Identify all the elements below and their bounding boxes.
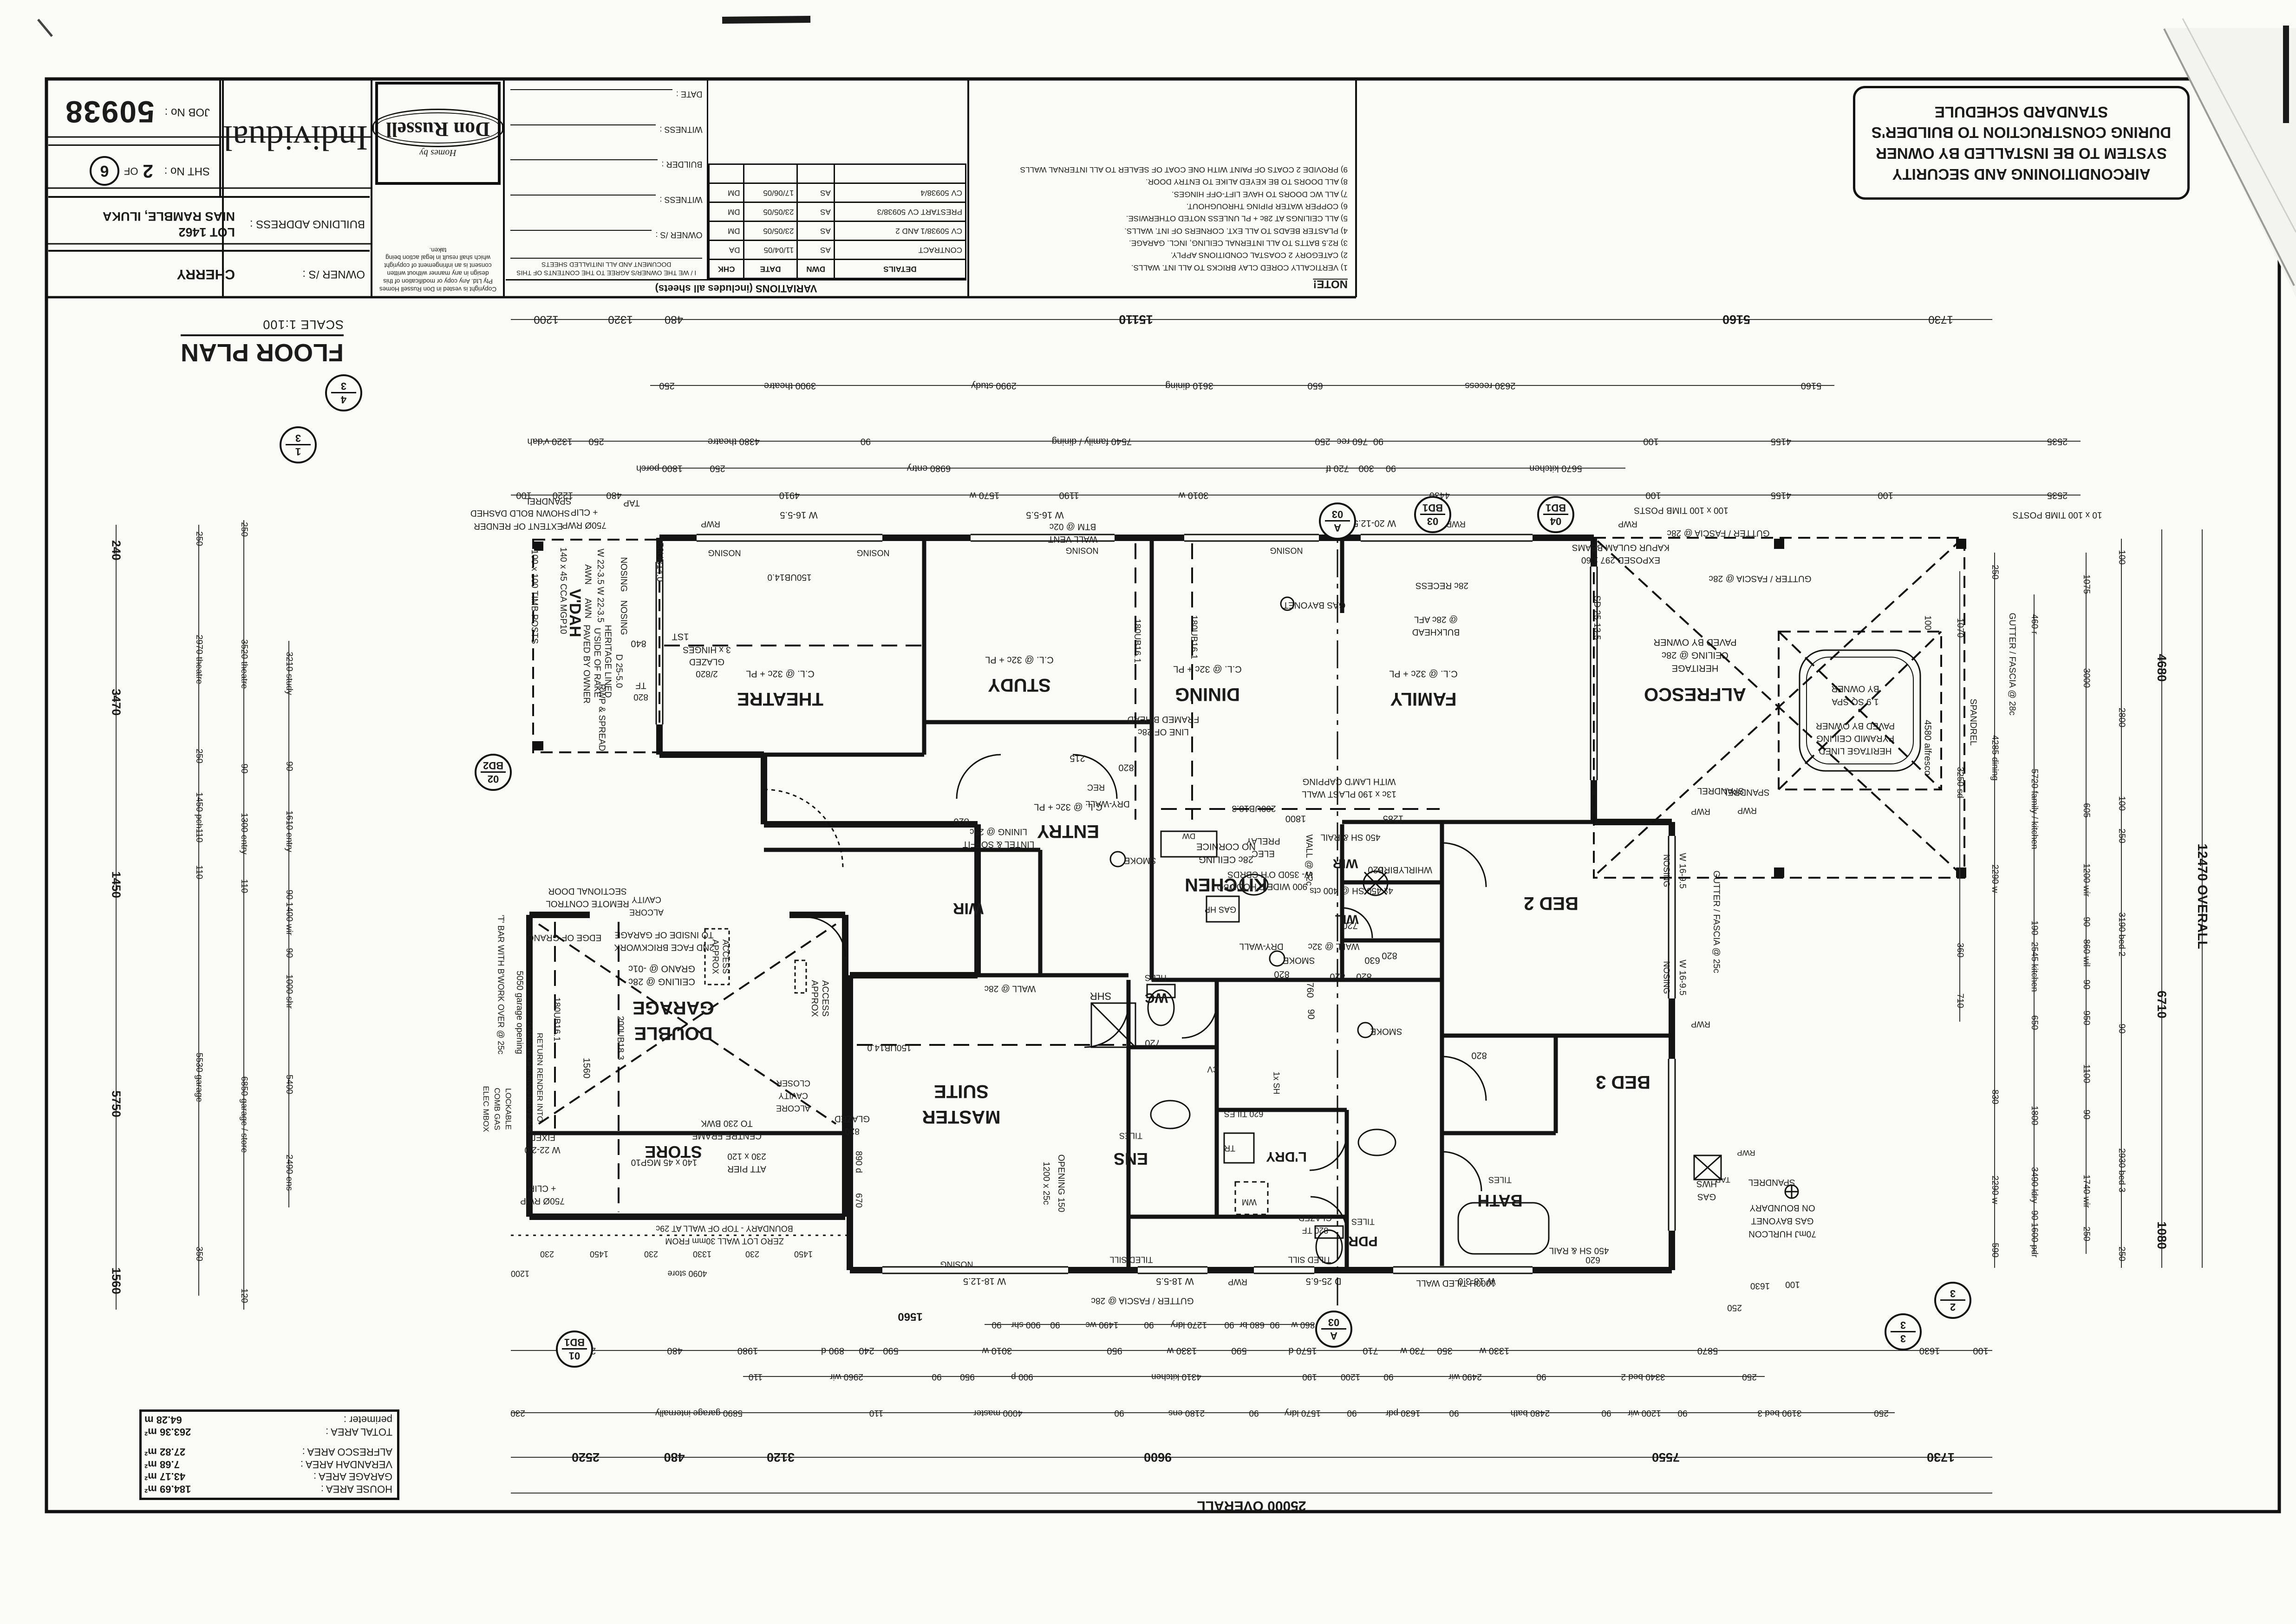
plan-label: 450 SH & RAIL [1549,1246,1609,1255]
area-row: GARAGE AREA :43.17 m² [141,1470,396,1483]
plan-label: NOSING [856,548,889,557]
drawing-title-block: FLOOR PLAN SCALE 1:100 [125,307,344,367]
plan-label: 1490 wc [1086,1320,1119,1329]
plan-label: 1220 [553,490,574,500]
copyright-text: Copyright is vested in Don Russell Homes… [373,187,502,296]
plan-label: 710 [1363,1346,1378,1356]
reference-marker: 23 [1934,1282,1971,1319]
aircon-note-box: AIRCONDITIONING AND SECURITY SYSTEM TO B… [1853,86,2190,200]
builder-logo-block: Copyright is vested in Don Russell Homes… [373,80,502,296]
note-item: 2) CATEGORY 2 COASTAL CONDITIONS APPLY. [977,249,1348,261]
plan-label: LOCKABLE [504,1088,512,1130]
plan-label: 1330 w [1480,1346,1510,1356]
plan-label: @ 28c AFL [1414,614,1458,624]
plan-label: 'T' BAR WITH B'WORK OVER @ 25c [496,915,505,1055]
plan-label: 90 [1536,1372,1546,1381]
plan-label: 90 [2081,1109,2091,1119]
plan-label: 1ST [672,632,689,641]
plan-label: 90 [1306,1009,1316,1019]
room-label: MASTER [922,1107,1001,1127]
plan-label: 890 d [821,1346,844,1356]
plan-label: CEILING @ 28c [1662,650,1729,660]
plan-label: 6980 entry [907,463,951,473]
plan-label: GUTTER / FASCIA @ 28c [1709,574,1812,583]
plan-label: RWP [1618,520,1637,528]
plan-label: 620 [1585,1255,1600,1264]
room-label: 1450 [110,871,122,898]
plan-label: 150UB14.0 [655,537,664,581]
room-label: 4680 [2155,654,2168,682]
plan-label: 90 1600 pdr [2029,1210,2039,1257]
variations-table: DETAILSDWNDATECHK CONTRACTAS11/04/05DACV… [708,163,966,279]
plan-label: 10 x 100 TIMB POSTS [2013,510,2102,519]
plan-label: 110 [239,879,248,893]
room-label: 1560 [898,1311,922,1322]
room-label: ENTRY [1037,822,1099,841]
plan-label: HERITAGE [1672,663,1719,673]
plan-label: GRANO @ -01c [628,964,695,973]
room-label: 12470 OVERALL [2195,843,2209,949]
plan-label: 250 [2117,828,2126,843]
plan-label: 820 [633,692,648,701]
plan-label: 820 [953,816,969,826]
plan-label: 860 w [1291,1320,1315,1329]
room-label: 5160 [1722,313,1750,326]
plan-label: TILED SILL [1109,1255,1153,1264]
plan-label: 2630 recess [1465,381,1516,391]
plan-label: 110 [749,1372,763,1381]
plan-label: W 16-9.5 [1677,959,1687,995]
plan-label: 2545 kitchen [2029,942,2039,992]
total-sheets: 6 [90,156,119,186]
plan-label: 1450 [590,1250,608,1259]
plan-label: 215 [1070,753,1085,763]
variation-row [709,164,966,183]
scanned-floor-plan-sheet: OWNER /S : CHERRY BUILDING ADDRESS : LOT… [0,0,2296,1624]
plan-label: 3250 sd [1955,767,1964,798]
plan-label: 180UB16.1 [552,997,561,1041]
plan-label: GAS HP [1205,905,1236,914]
plan-label: 820 [1274,969,1289,979]
plan-label: CV [1207,1065,1219,1074]
room-label: 3470 [110,689,122,716]
plan-label: 2290 w [1990,1175,1999,1204]
plan-label: 950 [960,1372,975,1381]
plan-label: 250 [659,381,674,391]
plan-label: WALL VENT [1048,534,1097,543]
plan-label: KAPUR GULAM BEAMS [1572,542,1670,552]
plan-label: 5670 kitchen [1529,463,1582,473]
don-russell-logo: Homes by Don Russell [375,82,501,185]
plan-label: CAVITY [778,1091,808,1100]
plan-label: 90 [1270,1320,1279,1329]
room-label: 2520 [572,1451,600,1464]
plan-label: 90 [2081,979,2091,989]
note-item: 8) ALL DOORS TO BE KEYED ALIKE TO ENTRY … [977,176,1348,188]
plan-label: 200UB18.3 [615,1016,625,1060]
drawing-scale: SCALE 1:100 [125,317,344,332]
plan-label: 2/820 [696,669,718,678]
plan-label: 250 [1727,1303,1742,1312]
plan-label: C.L. @ 32c + PL [985,655,1054,665]
plan-label: ELEC [1252,848,1275,858]
plan-label: 4155 [1771,437,1792,446]
plan-label: RWP [701,520,720,528]
plan-label: 670 [854,1193,863,1208]
plan-label: 150UB14.0 [867,1043,911,1052]
reference-marker: 33 [1885,1313,1922,1350]
variations-title: VARIATIONS (includes all sheets) [506,279,966,296]
plan-label: 1630 pdr [1385,1408,1420,1417]
variations-header: DATE [744,260,797,279]
plan-label: 250 [710,463,725,473]
area-row: TOTAL AREA :263.36 m² [141,1426,396,1438]
plan-label: GLAZED [1298,1213,1332,1222]
variation-row: CONTRACTAS11/04/05DA [709,241,966,260]
room-label: BED 3 [1596,1072,1650,1092]
plan-label: 250 [1742,1372,1757,1381]
plan-label: TAP [1715,1175,1730,1184]
plan-label: 4000 master [973,1408,1023,1417]
plan-label: 1560 [581,1058,591,1079]
plan-label: DW [1182,832,1195,840]
plan-label: 1800 [2029,1106,2039,1125]
plan-label: C.L. @ 32c + PL [746,669,815,678]
room-label: 1080 [2155,1221,2168,1249]
plan-label: 3610 dining [1165,381,1213,391]
plan-label: 180UB16.1 [1189,615,1198,659]
plan-label: EDGE OF GRANO [527,933,601,942]
plan-label: LINING @ 25c [970,827,1027,836]
reference-marker: A03 [1319,502,1356,540]
plan-label: 90 [2117,1024,2126,1033]
plan-label: CENTRE FRAME [692,1131,762,1140]
plan-label: 1630 [1750,1281,1770,1290]
plan-label: 1200 wir [1628,1408,1661,1417]
plan-label: NOSING [1662,854,1671,887]
plan-label: 1450 [794,1250,813,1259]
plan-label: 750Ø RWP [520,1196,565,1205]
plan-label: 820 [1330,972,1345,981]
logo-name: Don Russell [386,118,490,141]
plan-label: 5720 family / kitchen [2029,769,2039,849]
plan-label: 250 [588,437,604,446]
plan-label: + CLIP [529,1183,556,1193]
plan-label: 90 [1386,463,1396,473]
plan-label: 150UB14.0 [767,572,811,581]
plan-label: 350 [1437,1346,1452,1356]
plan-label: 230 [540,1250,554,1259]
plan-label: 2490 ens [284,1154,294,1191]
plan-label: 230 x 120 [727,1151,766,1161]
plan-label: WM [1242,1198,1257,1207]
plan-label: 100 [1923,615,1932,630]
plan-label: 2180 ens [1168,1408,1205,1417]
note-item: 5) ALL CEILINGS AT 28c + PL UNLESS NOTED… [977,212,1348,224]
plan-label: 2490 wir [1448,1372,1482,1381]
plan-series-name: Individual [223,118,368,158]
area-row: HOUSE AREA :184.69 m² [141,1482,396,1495]
plan-label: 250 [2117,1246,2126,1261]
plan-label: 100 [1973,1346,1988,1356]
plan-label: FIXED [529,1132,555,1141]
plan-label: 590 [1231,1346,1246,1356]
plan-label: LINTEL & SOFFIT [963,839,1035,848]
plan-label: 140 x 45 MGP10 [631,1157,698,1167]
plan-label: BY OWNER [1831,684,1879,693]
plan-label: PYRAMID CEILING [1816,733,1894,743]
plan-label: 1570 d [1288,1346,1317,1356]
plan-label: 250 [194,531,203,546]
plan-label: NOSING [619,557,628,592]
plan-label: + CLIP [571,507,598,516]
note-item: 6) COPPER WATER PIPING THROUGHOUT. [977,200,1348,212]
plan-label: HWS [1696,1179,1717,1188]
plan-label: REC [1087,783,1105,792]
plan-label: GAS [1697,1192,1716,1201]
room-label: V'DAH [566,589,583,637]
room-label: 240 [110,540,122,560]
plan-label: 890 d [854,1151,863,1173]
plan-label: GAS BAYONET [1283,600,1346,609]
plan-label: 1200 wir [2081,863,2091,897]
plan-label: 2535 [2047,437,2068,446]
job-no-label: JOB No : [160,103,215,122]
plan-label: SMOKE [1124,855,1156,865]
address-street: NIAS RAMBLE, ILUKA [103,208,235,224]
plan-label: 1270 ldry [1171,1320,1207,1329]
plan-label: 3010 w [982,1346,1012,1356]
plan-label: 250 [1990,565,1999,580]
plan-label: 5400 [284,1075,294,1094]
plan-label: 820 [1471,1050,1487,1060]
plan-label: 1320 v'dah [527,437,572,446]
plan-label: 5530 garage [194,1053,203,1102]
plan-label: 90 [1249,1408,1259,1417]
plan-label: GARAGE OPENING REVEALS [525,1022,534,1133]
plan-label: 950 [1107,1346,1122,1356]
plan-label: WHIRLYBIRD [1377,865,1432,874]
plan-label: NOSING [1270,546,1303,555]
plan-label: 100 [1878,490,1893,500]
address-label: BUILDING ADDRESS : [235,215,370,233]
plan-label: 90 [861,437,871,446]
plan-label: 180UB16.1 [1132,619,1141,663]
area-schedule: HOUSE AREA :184.69 m²GARAGE AREA :43.17 … [139,1409,399,1500]
plan-label: 830 [1990,1089,1999,1104]
owner-name: CHERRY [176,266,235,282]
plan-label: 2960 wir [830,1372,863,1381]
signature-row: WITNESS : [510,124,702,145]
plan-label: ELEC MBOX [482,1086,490,1132]
plan-label: 820 [1356,972,1371,981]
room-label: THEATRE [737,689,823,709]
plan-label: OPENING 150 [1056,1154,1065,1213]
plan-label: ON BOUNDARY [1749,1203,1815,1212]
plan-label: 90 [932,1372,941,1381]
plan-label: 300 [1358,463,1374,473]
plan-label: 1630 [1919,1346,1940,1356]
plan-label: C.L. @ 32c + PL [1173,664,1242,674]
plan-label: 760 rec [1337,437,1368,446]
plan-label: 4x 450 SH @ 400 cts [1310,886,1393,895]
plan-label: 90 [1373,437,1383,446]
plan-label: GAS BAYONET [1751,1216,1814,1225]
plan-label: AWN [583,598,592,619]
room-label: 6710 [2155,991,2168,1018]
sheet-no-label: SHT No : [160,162,215,180]
plan-label: 70mJ HURLCON [1748,1229,1816,1238]
plan-label: 90 1400 wir [284,890,294,935]
plan-label: GUTTER / FASCIA @ 28c [1091,1296,1194,1305]
area-row: VERANDAH AREA :7.68 m² [141,1458,396,1470]
plan-label: 7540 family / dining [1052,437,1132,446]
plan-label: 3010 w [1179,490,1209,500]
plan-label: 90 [1050,1320,1060,1329]
plan-label: 1200 [511,1269,529,1278]
plan-label: 90 [1144,1320,1154,1329]
room-label: GARAGE [633,998,714,1017]
plan-label: TAP [623,498,640,507]
plan-label: SPANDREL [1697,786,1744,795]
plan-label: 250 [1315,437,1330,446]
plan-label: 1740 wir [2081,1174,2091,1208]
plan-label: 1450 pch110 [194,792,203,842]
plan-label: 1075 [2081,574,2091,594]
plan-label: TR [1224,1144,1235,1153]
plan-label: SPANDREL [1748,1177,1795,1187]
plan-label: 100 [516,490,531,500]
plan-label: BOUNDARY - TOP OF WALL AT 29c [656,1224,793,1233]
plan-label: 1190 [1059,490,1079,500]
plan-label: 590 [883,1346,898,1356]
plan-label: 230 [745,1250,759,1259]
plan-label: FRAMED B'HEAD [1128,714,1200,724]
plan-label: 3 x HINGES [683,645,731,654]
plan-label: TILES [1488,1175,1512,1184]
plan-label: 3900 theatre [764,381,816,391]
area-row [141,1438,396,1446]
plan-label: 120 [239,1288,248,1303]
plan-label: EXTENT OF RENDER [474,521,563,530]
plan-label: SPANDREL [1968,698,1977,745]
plan-label: HERITAGE LINED [1819,746,1892,755]
plan-label: ZERO LOT WALL 30mm FROM [665,1237,783,1246]
plan-label: 2535 [2047,490,2068,500]
plan-label: W- 350D O'H CBRDS [1227,869,1313,879]
room-label: L'DRY [1266,1149,1307,1164]
plan-label: RETURN RENDER INTO [535,1033,544,1122]
plan-label: W 16-5.5 [1026,510,1063,520]
room-label: DINING [1175,685,1240,704]
variation-row: PRESTART CV 50938/3AS23/05/05DM [709,202,966,222]
plan-label: 90 [284,761,294,771]
drawing-title: FLOOR PLAN [181,334,344,367]
plan-label: 480 [667,1346,682,1356]
plan-label: 460 r [2029,614,2039,634]
plan-label: 3490 ldry [2029,1167,2039,1203]
variations-header: DWN [797,260,834,279]
plan-label: 3190 bed 3 [1757,1408,1801,1417]
plan-label: 13c x 190 PLAST WALL [1302,789,1396,798]
signature-row: DATE : [510,89,702,110]
plan-label: 590 [1990,1243,1999,1258]
plan-label: 3000 [2081,668,2091,688]
plan-label: EXPOSED 297 x 60 [1581,555,1660,564]
notes-title: NOTE! [977,275,1348,293]
plan-label: PAVED BY OWNER [581,625,591,704]
variations-header: CHK [709,260,744,279]
plan-label: RWP [1691,807,1710,816]
room-label: 1730 [1927,1451,1955,1464]
plan-label: 1000 shr [284,974,294,1009]
plan-label: 28c CEILING [1199,854,1253,864]
plan-label: TILES [1145,973,1168,982]
plan-label: SHR [1090,991,1111,1001]
area-row: ALFRESCO AREA :27.82 m² [141,1446,396,1458]
plan-label: 1100 [2081,1064,2091,1083]
plan-label: 200UB18.3 [1232,803,1276,813]
plan-label: 2800 [2117,708,2126,727]
plan-label: 2990 study [971,381,1017,391]
plan-label: SECTIONAL DOOR [548,886,626,895]
plan-label: 100 [1643,437,1658,446]
plan-label: C.L. @ 32c + PL [1389,669,1458,678]
plan-label: 1800 porch [636,463,683,473]
room-label: PDR [1348,1233,1377,1248]
room-label: STUDY [988,675,1051,695]
plan-label: 1285 [1383,814,1404,823]
plan-label: 3210 study [284,652,294,695]
plan-label: 250 [194,749,203,763]
plan-label: 250 [239,522,248,537]
plan-label: 90 [2081,917,2091,926]
plan-label: 4910 [779,490,800,500]
plan-label: 1570 w [970,490,1000,500]
plan-label: 650 [1307,381,1323,391]
plan-label: 90 [1114,1408,1124,1417]
plan-label: 1330 [693,1250,711,1259]
plan-label: 860 wil [2081,939,2091,966]
plan-label: 720 tf [1326,463,1349,473]
plan-label: APPROX [711,939,720,974]
room-label: DOUBLE [634,1024,713,1043]
plan-label: CLOSER [776,1079,810,1088]
plan-label: PAVED BY OWNER [1654,637,1737,647]
note-item: 3) R2.5 BATTS TO ALL INTERNAL CEILING, I… [977,237,1348,249]
plan-label: AWN [583,564,592,585]
plan-label: RWP [1737,1148,1755,1157]
plan-label: 4090 store [667,1269,707,1278]
plan-label: NOSING [708,548,741,557]
note-item: 7) ALL WC DOORS TO HAVE LIFT-OFF HINGES. [977,188,1348,200]
plan-label: W 18-12.5 [963,1276,1006,1286]
plan-label: 1300 entry [239,813,248,854]
plan-label: 480 [606,490,621,500]
address-lot: LOT 1462 [103,224,235,240]
plan-label: 3190 bed 2 [2117,912,2126,956]
room-label: 7550 [1652,1451,1680,1464]
plan-label: 4285 dining [1990,735,1999,781]
plan-label: 450 SH & RAIL [1321,832,1381,841]
plan-label: 250 [1874,1408,1889,1417]
plan-label: APPROX [809,980,819,1017]
plan-label: 760 [1305,982,1315,998]
plan-label: 230 [644,1250,658,1259]
plan-label: 1730 [1928,313,1953,325]
of-label: OF [124,165,138,177]
plan-label: 480 [665,313,683,325]
